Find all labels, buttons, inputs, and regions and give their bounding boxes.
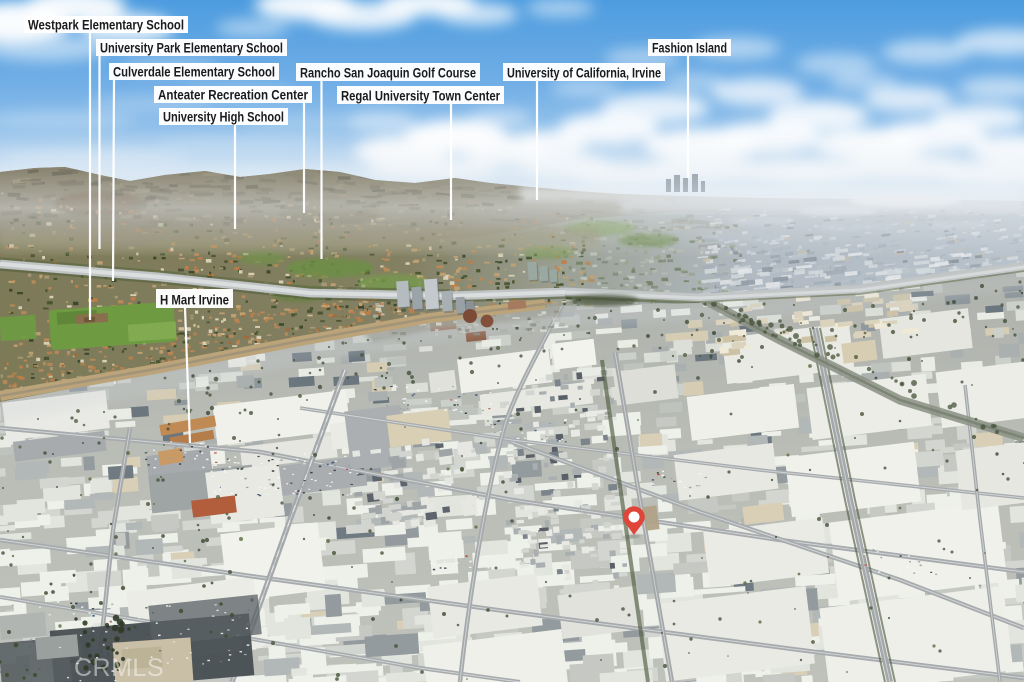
svg-text:University of California, Irvi: University of California, Irvine xyxy=(507,66,661,82)
svg-text:Regal University Town Center: Regal University Town Center xyxy=(341,89,500,105)
svg-text:Anteater Recreation Center: Anteater Recreation Center xyxy=(158,88,308,104)
svg-text:University High School: University High School xyxy=(163,110,284,126)
svg-text:H Mart Irvine: H Mart Irvine xyxy=(160,293,229,309)
svg-text:University Park Elementary Sch: University Park Elementary School xyxy=(100,41,283,57)
svg-text:Culverdale Elementary School: Culverdale Elementary School xyxy=(113,65,275,81)
svg-text:Fashion Island: Fashion Island xyxy=(652,41,727,57)
svg-text:Westpark Elementary School: Westpark Elementary School xyxy=(28,18,184,34)
svg-text:Rancho San Joaquin Golf Course: Rancho San Joaquin Golf Course xyxy=(300,66,476,82)
svg-text:CRMLS: CRMLS xyxy=(74,654,164,682)
